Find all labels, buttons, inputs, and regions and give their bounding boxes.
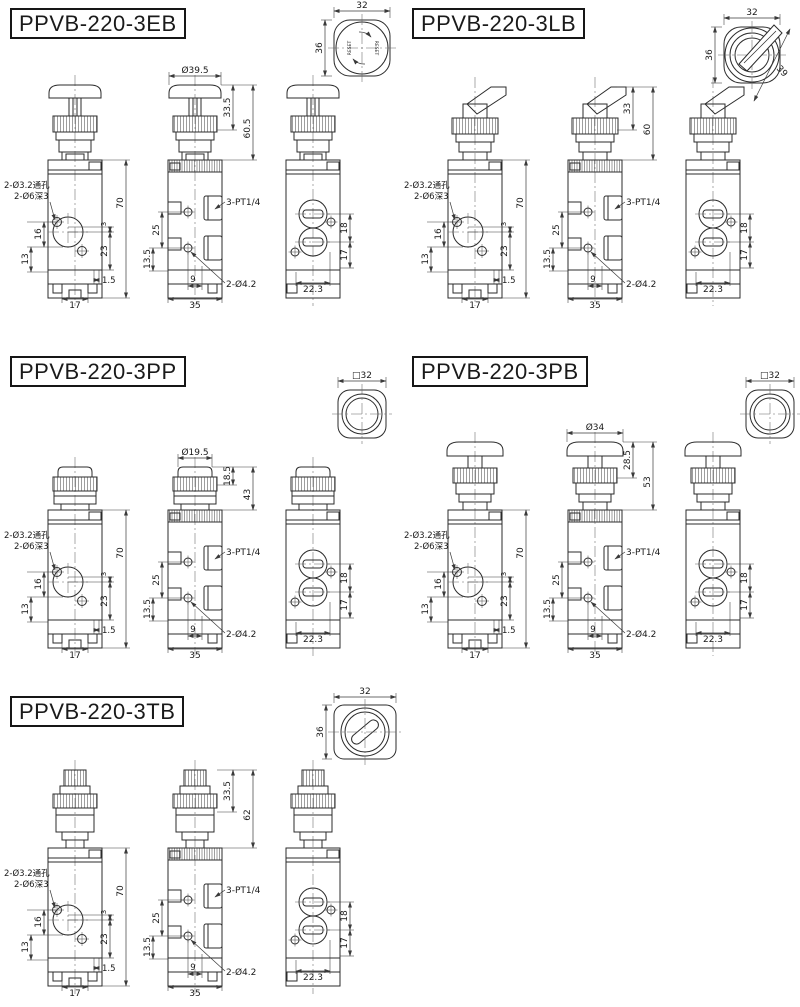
dim-label: 9	[590, 275, 595, 285]
dim-label: 70	[116, 885, 126, 897]
dim-label: 9	[190, 275, 195, 285]
leader-line	[215, 890, 225, 897]
dim-label: 36	[315, 42, 325, 54]
dim-label: 35	[189, 651, 200, 661]
valve-datasheet-page: 2-Ø3.2通孔2-Ø6深37032316131.517Ø39.533.560.…	[0, 0, 800, 1007]
dim-label: 23	[500, 245, 510, 256]
dim-label: 53	[643, 476, 653, 487]
rect-shape	[488, 634, 497, 643]
dim-label: 13.5	[543, 249, 553, 269]
section-ppvb-220-3eb: 2-Ø3.2通孔2-Ø6深37032316131.517Ø39.533.560.…	[4, 1, 396, 311]
dim-label: 13.5	[143, 937, 153, 957]
rect-shape	[727, 512, 739, 520]
rect-shape	[570, 513, 580, 520]
top-view-key-head: 3236	[316, 687, 402, 765]
rect-shape	[604, 546, 622, 570]
dim-label: 36	[316, 726, 326, 738]
rect-shape	[488, 284, 497, 293]
model-title-label: PPVB-220-3TB	[19, 699, 175, 724]
dim-label: 70	[116, 547, 126, 559]
rect-shape	[88, 284, 97, 293]
dim-label: 70	[116, 197, 126, 209]
dim-label: 9	[190, 963, 195, 973]
port-face-dimensions: Ø19.518.5432513.59353-PT1/42-Ø4.2	[143, 447, 261, 661]
rect-shape	[89, 850, 101, 858]
dim-label: □32	[760, 371, 780, 381]
model-title-label: PPVB-220-3EB	[19, 11, 177, 36]
leader-line	[215, 202, 225, 209]
port-thread-note: 3-PT1/4	[226, 198, 261, 208]
dim-label: 32	[356, 1, 367, 11]
dim-label: 17	[740, 599, 750, 610]
rect-shape	[604, 196, 622, 220]
dim-label: 16	[34, 228, 44, 240]
dim-label: 1.5	[502, 626, 516, 636]
dim-label: 18	[740, 572, 750, 584]
front-view-dimensions: 2-Ø3.2通孔2-Ø6深37032316131.517	[4, 510, 130, 661]
mount-hole-note: 2-Ø6深3	[414, 191, 448, 202]
dim-label: 17	[740, 249, 750, 260]
rect-shape	[208, 972, 217, 981]
dim-label: 35	[189, 989, 200, 999]
model-title-box: PPVB-220-3PB	[412, 356, 588, 387]
port-face-dimensions: 33602513.59353-PT1/42-Ø4.2	[543, 87, 661, 311]
mount-hole-note: 2-Ø3.2通孔	[404, 530, 450, 541]
port-thread-note: 3-PT1/4	[626, 548, 661, 558]
side-view-dimensions: 181722.3	[696, 214, 754, 295]
top-view-round-head: □32	[740, 371, 800, 444]
port-thread-note: 3-PT1/4	[226, 886, 261, 896]
dim-label: 16	[434, 228, 444, 240]
dim-label: 25	[552, 224, 562, 235]
dim-label: 13	[421, 603, 431, 614]
dim-label: 17	[69, 651, 80, 661]
dim-label: 23	[100, 245, 110, 256]
reset-label: RESET	[373, 41, 379, 56]
rect-shape	[89, 512, 101, 520]
mount-hole-note: 2-Ø3.2通孔	[4, 180, 50, 191]
dim-label: 33.5	[223, 781, 233, 801]
dim-label: 17	[340, 249, 350, 260]
path-shape	[353, 59, 365, 64]
dim-label: 25	[152, 912, 162, 923]
rect-shape	[204, 884, 222, 908]
dim-label: 23	[100, 595, 110, 606]
leader-line	[615, 552, 625, 559]
rect-shape	[608, 284, 617, 293]
dim-label: 17	[340, 599, 350, 610]
leader-line	[50, 552, 55, 570]
dim-label: 17	[469, 651, 480, 661]
dim-label: 23	[500, 595, 510, 606]
port-face-dimensions: 33.5622513.59353-PT1/42-Ø4.2	[143, 770, 261, 999]
rect-shape	[687, 634, 697, 643]
dim-label: 28.5	[623, 450, 633, 470]
dim-label: Ø34	[586, 422, 605, 433]
rect-shape	[208, 284, 217, 293]
dim-label: 35	[589, 651, 600, 661]
port-thread-note: 3-PT1/4	[226, 548, 261, 558]
dim-label: 13.5	[143, 599, 153, 619]
dim-label: 3	[100, 222, 108, 226]
dim-label: 18.5	[223, 466, 233, 486]
top-view-lever-head: 323639	[705, 8, 790, 101]
dim-label: 9	[190, 625, 195, 635]
dim-label: 13	[21, 253, 31, 264]
leader-line	[615, 202, 625, 209]
dim-label: 25	[152, 574, 162, 585]
dim-label: 60.5	[243, 118, 253, 138]
model-title-box: PPVB-220-3EB	[10, 8, 186, 39]
dim-label: 60	[643, 124, 653, 136]
dim-label: Ø19.5	[181, 447, 208, 458]
dim-label: 13	[421, 253, 431, 264]
section-ppvb-220-3lb: 2-Ø3.2通孔2-Ø6深37032316131.51733602513.593…	[404, 8, 790, 311]
mount-hole-note: 2-Ø4.2	[626, 629, 656, 640]
mount-hole-note: 2-Ø4.2	[626, 279, 656, 290]
dim-label: 35	[189, 301, 200, 311]
rect-shape	[88, 972, 97, 981]
dim-label: 32	[746, 8, 757, 18]
dim-label: 1.5	[102, 964, 116, 974]
mount-hole-note: 2-Ø6深3	[414, 541, 448, 552]
model-title-label: PPVB-220-3PB	[421, 359, 579, 384]
dim-label: 62	[243, 809, 253, 820]
mount-hole-note: 2-Ø4.2	[226, 279, 256, 290]
rect-shape	[53, 634, 62, 643]
mount-hole-note: 2-Ø6深3	[14, 191, 48, 202]
rect-shape	[489, 512, 501, 520]
mount-hole-note: 2-Ø3.2通孔	[4, 868, 50, 879]
dim-label: 36	[705, 49, 715, 61]
rect-shape	[453, 634, 462, 643]
dim-label: 1.5	[502, 276, 516, 286]
rect-shape	[204, 196, 222, 220]
dim-label: 1.5	[102, 626, 116, 636]
side-view-dimensions: 181722.3	[296, 902, 354, 983]
front-view-dimensions: 2-Ø3.2通孔2-Ø6深37032316131.517	[4, 848, 130, 999]
dim-label: 3	[500, 222, 508, 226]
rect-shape	[327, 162, 339, 170]
dim-label: 3	[500, 572, 508, 576]
side-view-dimensions: 181722.3	[296, 564, 354, 645]
valve-drawing-canvas: 2-Ø3.2通孔2-Ø6深37032316131.517Ø39.533.560.…	[0, 0, 800, 1007]
dim-label: 3	[100, 572, 108, 576]
top-view-round-head: □32	[332, 371, 392, 444]
mount-hole-note: 2-Ø3.2通孔	[404, 180, 450, 191]
port-thread-note: 3-PT1/4	[626, 198, 661, 208]
rect-shape	[53, 972, 62, 981]
top-view-reset-head: RESETRESET3236	[315, 1, 396, 82]
leader-line	[450, 202, 455, 220]
dim-label: 70	[516, 547, 526, 559]
rect-shape	[608, 634, 617, 643]
rect-shape	[204, 236, 222, 260]
front-view-dimensions: 2-Ø3.2通孔2-Ø6深37032316131.517	[404, 160, 530, 311]
dim-label: 17	[469, 301, 480, 311]
dim-label: 9	[590, 625, 595, 635]
model-title-box: PPVB-220-3PP	[10, 356, 186, 387]
rect-shape	[287, 284, 297, 293]
dim-label: 18	[740, 222, 750, 234]
mount-hole-note: 2-Ø6深3	[14, 541, 48, 552]
rect-shape	[327, 512, 339, 520]
rect-shape	[604, 236, 622, 260]
mount-hole-note: 2-Ø6深3	[14, 879, 48, 890]
side-view-dimensions: 181722.3	[296, 214, 354, 295]
leader-line	[50, 202, 55, 220]
dim-label: 13	[21, 941, 31, 952]
dim-label: 18	[340, 222, 350, 234]
rect-shape	[89, 162, 101, 170]
rect-shape	[170, 163, 180, 170]
rect-shape	[208, 634, 217, 643]
dim-label: 18	[340, 572, 350, 584]
dim-label: 32	[359, 687, 370, 697]
dim-label: 3	[100, 910, 108, 914]
model-title-label: PPVB-220-3PP	[19, 359, 177, 384]
rect-shape	[453, 284, 462, 293]
dim-label: 13.5	[543, 599, 553, 619]
dim-label: 16	[434, 578, 444, 590]
dim-label: □32	[352, 371, 372, 381]
dim-label: 17	[340, 937, 350, 948]
leader-line	[215, 552, 225, 559]
dim-label: 33	[623, 103, 633, 114]
dim-label: 13	[21, 603, 31, 614]
rect-shape	[687, 284, 697, 293]
dim-label: 16	[34, 916, 44, 928]
path-shape	[359, 32, 371, 37]
rect-shape	[570, 163, 580, 170]
dim-label: 22.3	[303, 285, 323, 295]
front-view-dimensions: 2-Ø3.2通孔2-Ø6深37032316131.517	[4, 160, 130, 311]
dim-label: 1.5	[102, 276, 116, 286]
dim-label: 16	[34, 578, 44, 590]
rect-shape	[489, 162, 501, 170]
dim-label: 22.3	[303, 973, 323, 983]
section-ppvb-220-3pb: 2-Ø3.2通孔2-Ø6深37032316131.517Ø3428.553251…	[404, 371, 800, 661]
dim-label: 17	[69, 989, 80, 999]
rect-shape	[604, 586, 622, 610]
dim-label: 13.5	[143, 249, 153, 269]
leader-line	[450, 552, 455, 570]
dim-label: Ø39.5	[181, 65, 208, 76]
mount-hole-note: 2-Ø3.2通孔	[4, 530, 50, 541]
model-title-box: PPVB-220-3LB	[412, 8, 585, 39]
dim-label: 17	[69, 301, 80, 311]
dim-label: 25	[552, 574, 562, 585]
port-face-dimensions: Ø39.533.560.52513.59353-PT1/42-Ø4.2	[143, 65, 261, 311]
rect-shape	[327, 850, 339, 858]
rect-shape	[727, 162, 739, 170]
dim-label: 22.3	[303, 635, 323, 645]
dim-label: 33.5	[223, 97, 233, 117]
mount-hole-note: 2-Ø4.2	[226, 629, 256, 640]
rect-shape	[53, 284, 62, 293]
rect-shape	[204, 924, 222, 948]
rect-shape	[287, 972, 297, 981]
front-view-dimensions: 2-Ø3.2通孔2-Ø6深37032316131.517	[404, 510, 530, 661]
reset-label: RESET	[347, 41, 353, 56]
rect-shape	[204, 546, 222, 570]
dim-label: 25	[152, 224, 162, 235]
leader-line	[50, 890, 55, 908]
rect-shape	[88, 634, 97, 643]
rect-shape	[170, 513, 180, 520]
dim-label: 43	[243, 489, 253, 500]
line-shape	[744, 31, 776, 63]
dim-label: 22.3	[703, 635, 723, 645]
section-ppvb-220-3pp: 2-Ø3.2通孔2-Ø6深37032316131.517Ø19.518.5432…	[4, 371, 392, 661]
mount-hole-note: 2-Ø4.2	[226, 967, 256, 978]
dim-label: 35	[589, 301, 600, 311]
rect-shape	[287, 634, 297, 643]
rect-shape	[204, 586, 222, 610]
dim-label: 70	[516, 197, 526, 209]
model-title-box: PPVB-220-3TB	[10, 696, 184, 727]
section-ppvb-220-3tb: 2-Ø3.2通孔2-Ø6深37032316131.51733.5622513.5…	[4, 687, 402, 999]
side-view-dimensions: 181722.3	[696, 564, 754, 645]
dim-label: 23	[100, 933, 110, 944]
dim-label: 22.3	[703, 285, 723, 295]
dim-label: 18	[340, 910, 350, 922]
rect-shape	[170, 851, 180, 858]
model-title-label: PPVB-220-3LB	[421, 11, 576, 36]
